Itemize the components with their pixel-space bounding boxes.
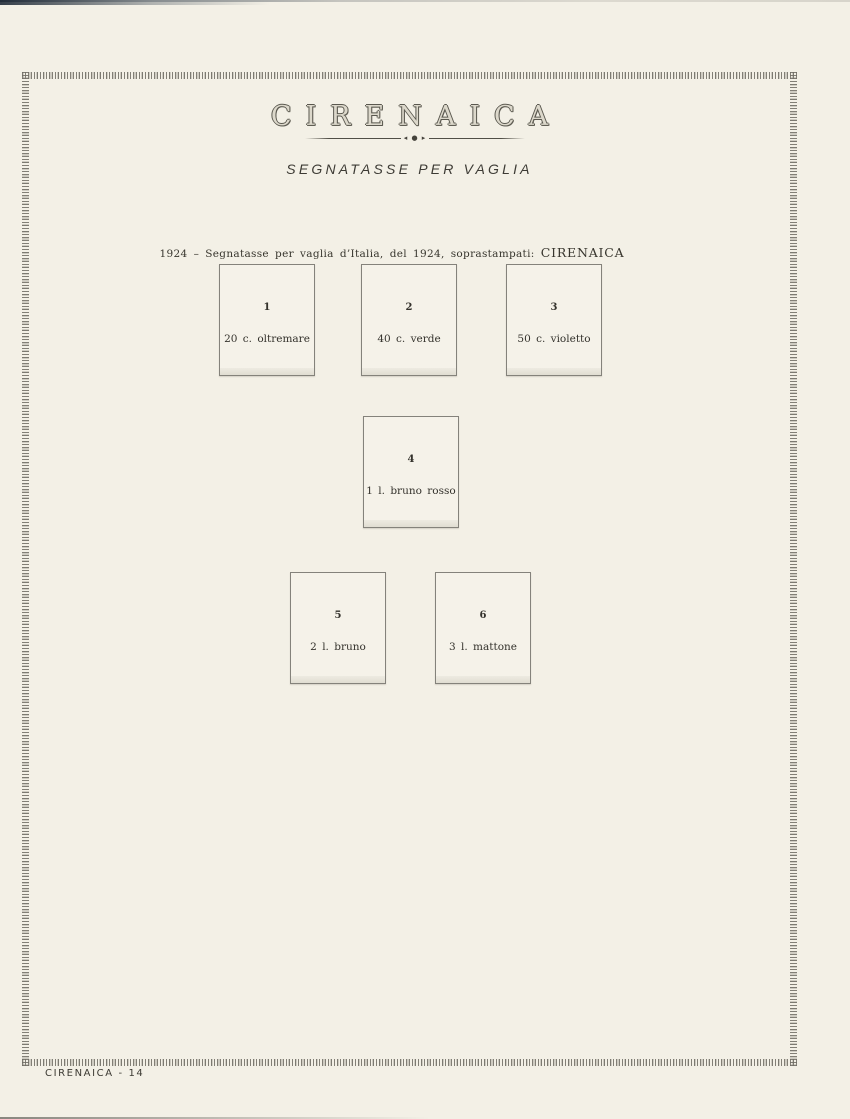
stamp-label: 50 c. violetto [507,333,601,345]
album-page: CIRENAICA ◂ ● ▸ SEGNATASSE PER VAGLIA 19… [0,0,850,1119]
set-caption-text: 1924 – Segnatasse per vaglia d’Italia, d… [160,248,535,260]
stamp-number: 1 [220,302,314,313]
stamp-label: 40 c. verde [362,333,456,345]
frame-edge-left [22,72,29,1066]
frame-edge-top [22,72,797,79]
stamp-number: 2 [362,302,456,313]
stamp-placeholder-2: 2 40 c. verde [361,264,457,376]
hatched-border-frame [22,72,797,1066]
stamp-label: 2 l. bruno [291,641,385,653]
stamp-placeholder-1: 1 20 c. oltremare [219,264,315,376]
stamp-placeholder-5: 5 2 l. bruno [290,572,386,684]
stamp-placeholder-3: 3 50 c. violetto [506,264,602,376]
page-title: CIRENAICA [22,101,797,132]
stamp-label: 20 c. oltremare [220,333,314,345]
set-caption: 1924 – Segnatasse per vaglia d’Italia, d… [0,245,784,260]
page-footer: CIRENAICA - 14 [45,1068,144,1079]
stamp-number: 6 [436,610,530,621]
stamp-number: 4 [364,454,458,465]
stamp-placeholder-6: 6 3 l. mattone [435,572,531,684]
divider-line-right [429,138,525,139]
stamp-label: 3 l. mattone [436,641,530,653]
divider-ornament-icon: ◂ ● ▸ [401,135,430,142]
stamp-placeholder-4: 4 1 l. bruno rosso [363,416,459,528]
frame-edge-bottom [22,1059,797,1066]
stamp-label: 1 l. bruno rosso [364,485,458,497]
title-divider: ◂ ● ▸ [305,133,525,143]
divider-line-left [305,138,401,139]
set-caption-emphasis: CIRENAICA [541,245,625,260]
scan-artifact-top-left [0,2,270,5]
page-subtitle: SEGNATASSE PER VAGLIA [22,161,797,177]
frame-edge-right [790,72,797,1066]
stamp-number: 5 [291,610,385,621]
stamp-number: 3 [507,302,601,313]
